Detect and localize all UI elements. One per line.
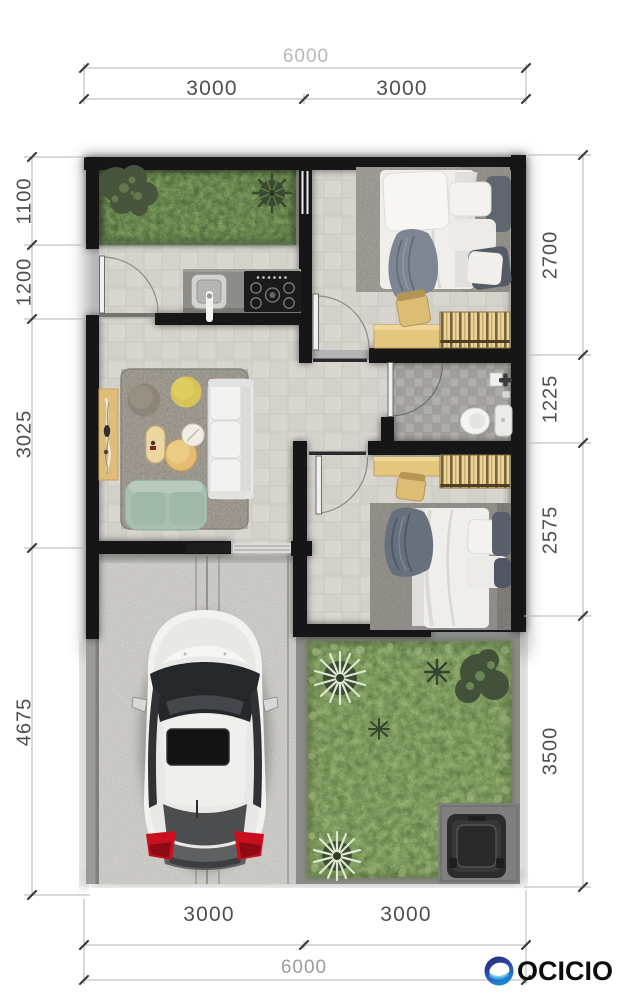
svg-text:1200: 1200 bbox=[13, 258, 35, 307]
svg-text:6000: 6000 bbox=[283, 46, 329, 67]
svg-text:4675: 4675 bbox=[13, 698, 35, 747]
svg-text:3500: 3500 bbox=[539, 727, 561, 776]
svg-text:3000: 3000 bbox=[376, 77, 428, 100]
svg-text:1100: 1100 bbox=[13, 177, 35, 224]
svg-text:3000: 3000 bbox=[186, 77, 238, 100]
svg-text:3000: 3000 bbox=[380, 903, 432, 926]
svg-text:2575: 2575 bbox=[539, 506, 561, 555]
svg-text:1225: 1225 bbox=[539, 375, 561, 424]
svg-text:3000: 3000 bbox=[183, 903, 235, 926]
svg-text:3025: 3025 bbox=[13, 410, 35, 459]
svg-text:2700: 2700 bbox=[539, 231, 561, 280]
svg-text:6000: 6000 bbox=[281, 957, 327, 978]
svg-text:OCICIO: OCICIO bbox=[517, 956, 613, 986]
